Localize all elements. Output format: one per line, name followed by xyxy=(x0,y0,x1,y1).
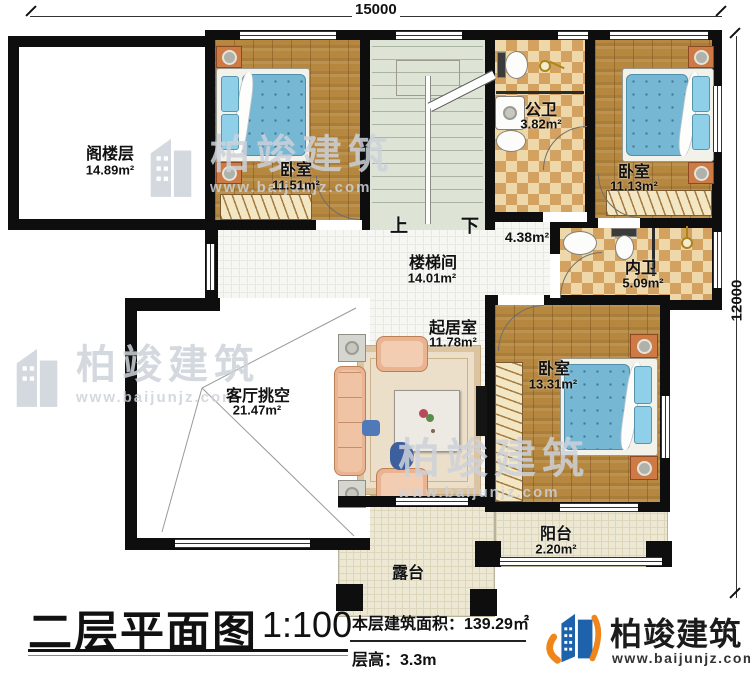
toilet-icon xyxy=(505,51,528,79)
door-opening xyxy=(316,220,362,230)
floor-plan: 15000 12000 xyxy=(0,0,750,683)
bed-pillow xyxy=(221,76,239,112)
room-label-bedroom-tl: 卧室 xyxy=(280,156,312,180)
hall-area-label: 4.38m² xyxy=(505,229,549,245)
title-underline-thin xyxy=(28,655,348,656)
flower-icon xyxy=(426,414,434,422)
door-opening xyxy=(598,218,640,228)
closet xyxy=(220,194,312,220)
door-opening xyxy=(498,295,544,305)
room-area-sitting: 11.78m² xyxy=(429,335,477,350)
room-label-ensuite: 内卫 xyxy=(625,254,657,278)
room-area-ensuite: 5.09m² xyxy=(622,276,663,291)
room-area-public-bath: 3.82m² xyxy=(520,117,561,132)
room-label-stairwell: 楼梯间 xyxy=(409,249,457,273)
bed-pillow xyxy=(634,366,652,404)
stair-up-label: 上 xyxy=(390,212,408,238)
void-marker-lines xyxy=(140,300,358,538)
sink-icon xyxy=(563,231,597,255)
dimension-tick xyxy=(25,5,36,16)
stair-down-label: 下 xyxy=(461,212,479,238)
nightstand xyxy=(216,162,242,184)
window xyxy=(396,497,468,506)
tv xyxy=(476,386,487,436)
partition-wall xyxy=(496,91,584,94)
room-area-bedroom-tr: 11.13m² xyxy=(610,179,658,194)
dimension-tick xyxy=(729,587,740,598)
washer-drum-icon xyxy=(503,106,517,120)
window xyxy=(396,31,462,40)
lamp-icon xyxy=(222,50,237,65)
sofa xyxy=(334,366,366,476)
dimension-tick xyxy=(715,5,726,16)
floor-height-label: 层高：3.3m xyxy=(352,646,436,670)
dimension-tick xyxy=(729,27,740,38)
brand-logo-icon xyxy=(544,608,606,670)
pillar xyxy=(475,541,501,567)
room-label-bedroom-br: 卧室 xyxy=(538,355,570,379)
dimension-right-label: 12000 xyxy=(729,268,746,334)
footer-divider xyxy=(350,640,526,642)
room-area-stairwell: 14.01m² xyxy=(408,271,456,286)
window xyxy=(610,31,708,40)
brand-url: www.baijunjz.com xyxy=(612,650,750,666)
nightstand xyxy=(688,46,714,68)
room-area-living-void: 21.47m² xyxy=(233,403,281,418)
brand-name: 柏竣建筑 xyxy=(610,609,742,655)
room-area-attic: 14.89m² xyxy=(86,163,134,178)
sink-icon xyxy=(496,130,526,152)
plant xyxy=(390,442,414,470)
bed-pillow xyxy=(692,76,710,112)
lamp-icon xyxy=(694,166,709,181)
lamp-icon xyxy=(222,166,237,181)
lamp-icon xyxy=(637,461,652,476)
window xyxy=(240,31,336,40)
floor-area-label: 本层建筑面积：139.29㎡ xyxy=(352,610,529,634)
lamp-icon xyxy=(694,50,709,65)
bed-pillow xyxy=(692,114,710,150)
window xyxy=(713,232,722,288)
scale-label: 1:100 xyxy=(262,604,352,646)
cushion xyxy=(362,420,380,436)
nightstand xyxy=(630,456,658,480)
nightstand xyxy=(630,334,658,358)
armchair xyxy=(376,336,428,372)
wardrobe xyxy=(495,362,523,502)
window xyxy=(713,86,722,152)
dimension-top-label: 15000 xyxy=(352,1,400,18)
nightstand xyxy=(216,46,242,68)
watermark-logo-icon xyxy=(8,340,66,410)
room-area-bedroom-br: 13.31m² xyxy=(529,377,577,392)
nightstand xyxy=(688,162,714,184)
window xyxy=(175,539,310,548)
door-opening xyxy=(543,212,587,222)
dot-icon xyxy=(431,429,435,433)
room-area-balcony: 2.20m² xyxy=(535,542,576,557)
room-area-bedroom-tl: 11.51m² xyxy=(272,178,320,193)
side-table xyxy=(338,334,366,362)
window xyxy=(558,31,588,40)
bed-pillow xyxy=(221,114,239,150)
sofa-cushions xyxy=(338,370,362,472)
armchair-cushion xyxy=(381,341,423,367)
stair-rail xyxy=(425,76,431,224)
title-underline xyxy=(28,649,348,652)
room-label-balcony: 阳台 xyxy=(540,520,572,544)
lamp-icon xyxy=(637,339,652,354)
room-attic xyxy=(8,36,216,230)
door-opening xyxy=(550,254,560,298)
shower-hose-icon xyxy=(686,226,688,239)
room-label-attic: 阁楼层 xyxy=(86,140,134,164)
window xyxy=(206,244,215,290)
window xyxy=(661,396,670,458)
room-label-terrace: 露台 xyxy=(392,559,424,583)
brand-logo: 柏竣建筑 www.baijunjz.com xyxy=(544,608,744,674)
bed-pillow xyxy=(634,406,652,444)
table-lamp-icon xyxy=(345,341,359,355)
window xyxy=(560,503,638,512)
balcony-railing xyxy=(500,557,662,566)
